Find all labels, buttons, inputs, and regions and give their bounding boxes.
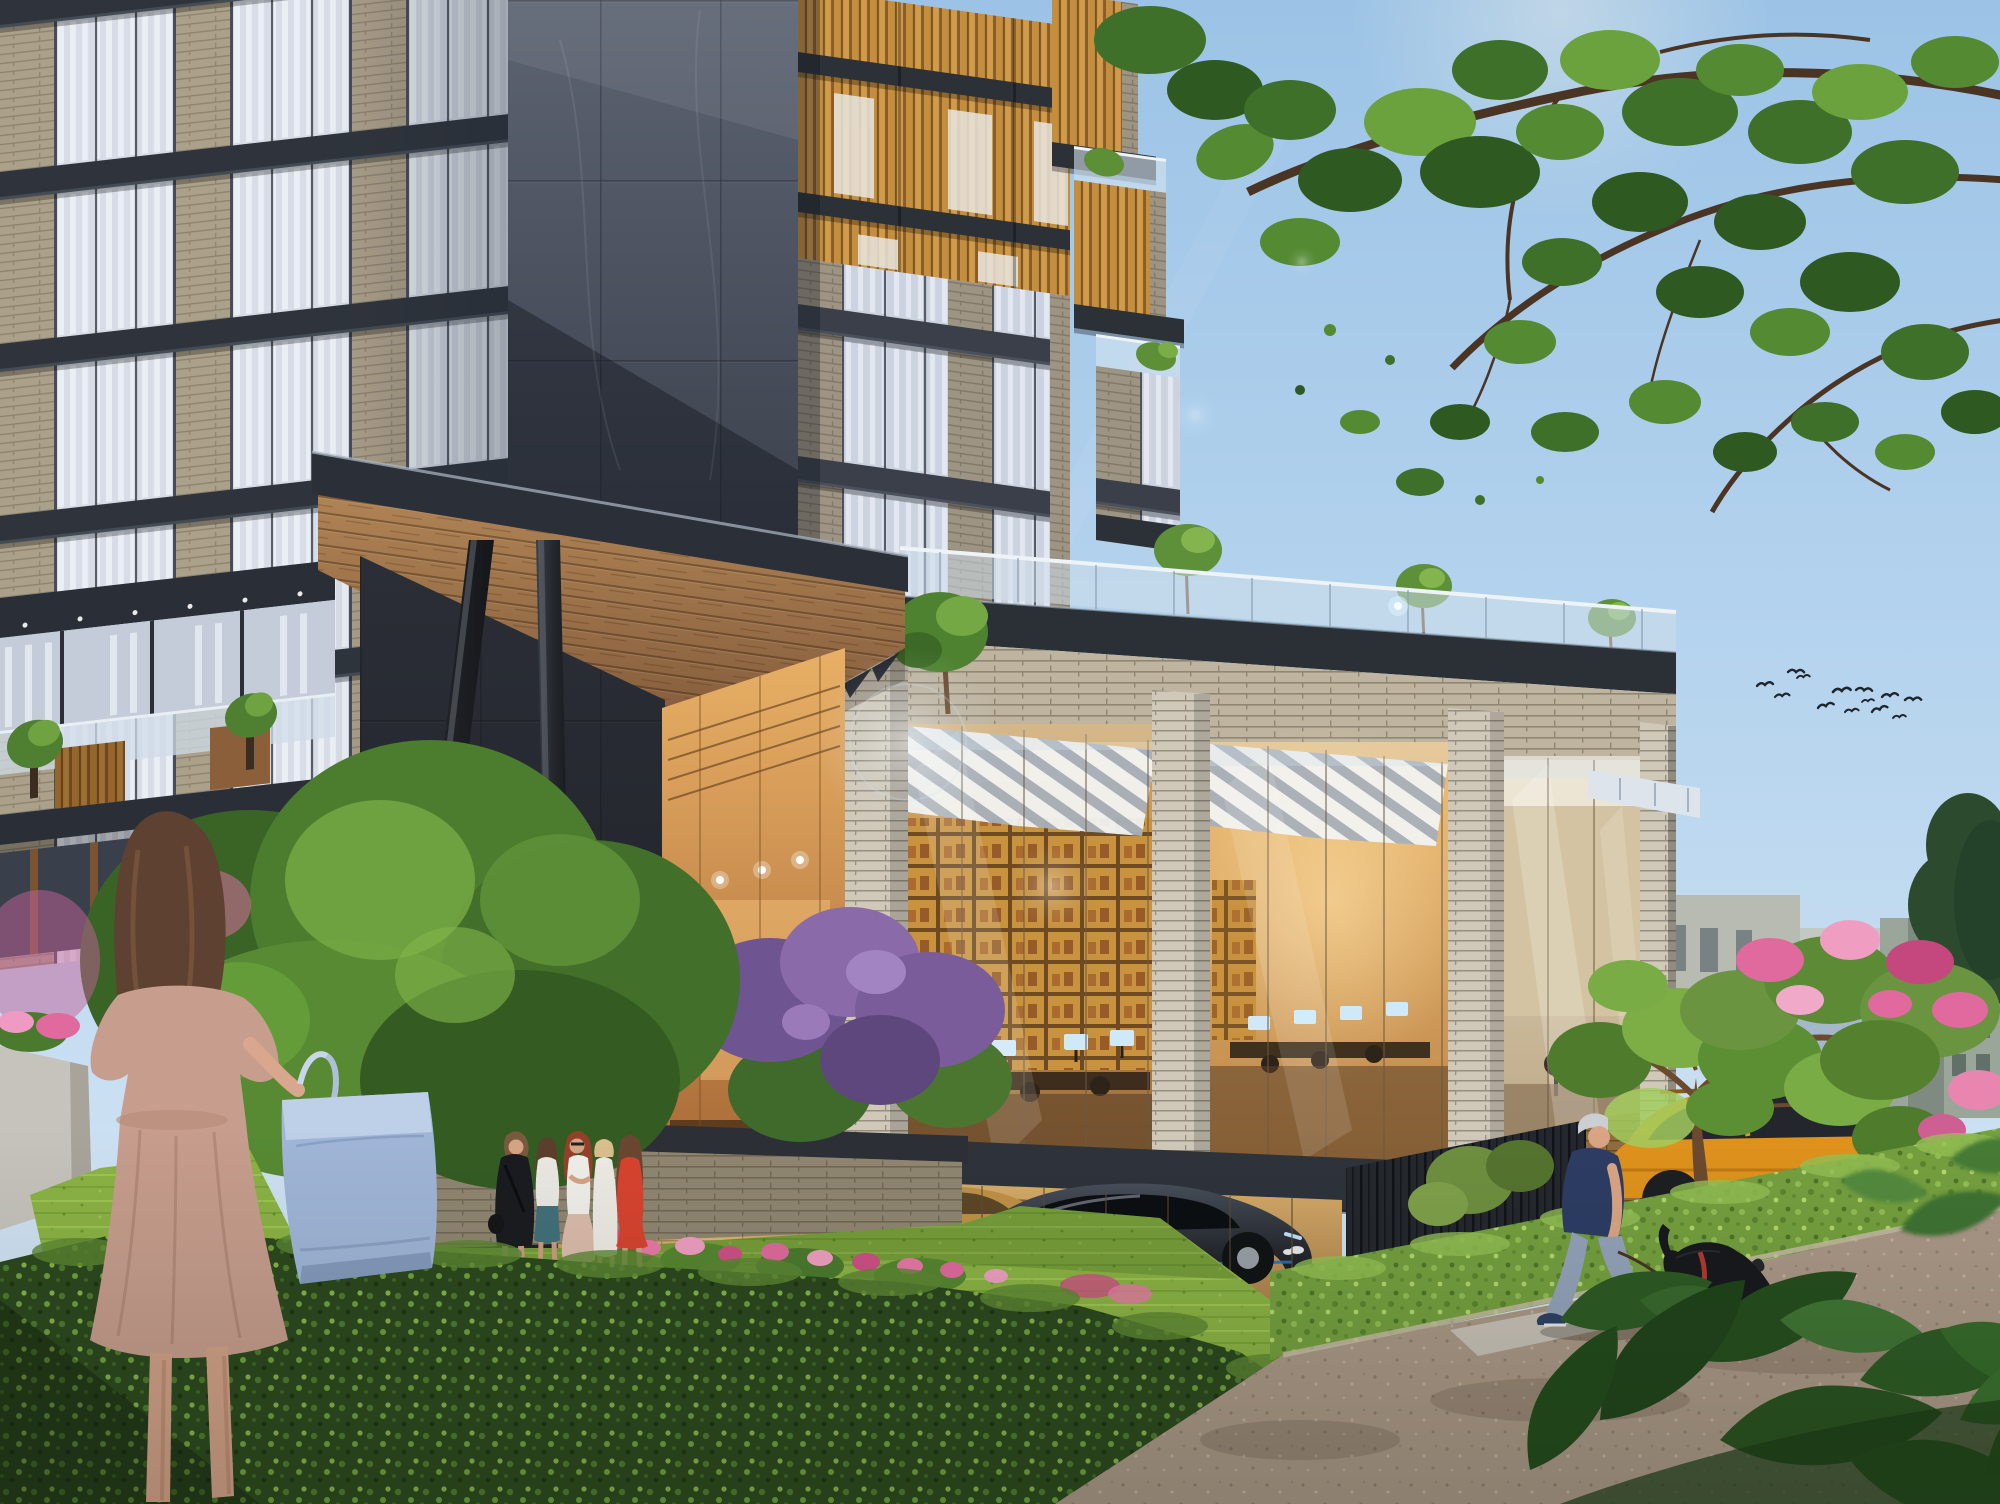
vignette: [0, 0, 2000, 1504]
architectural-rendering: [0, 0, 2000, 1504]
